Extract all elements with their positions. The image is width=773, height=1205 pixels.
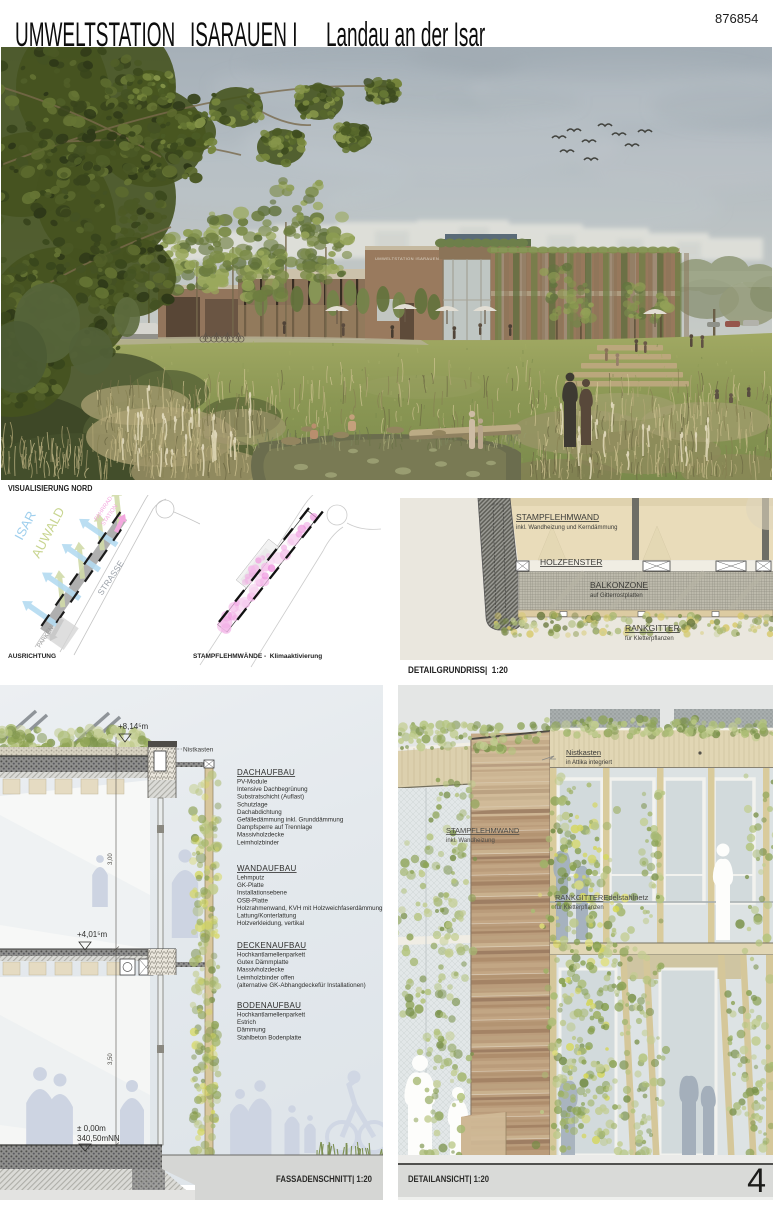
svg-text:Dampfsperre auf Trennlage: Dampfsperre auf Trennlage [237, 824, 313, 831]
svg-text:BALKONZONE: BALKONZONE [590, 580, 648, 590]
svg-text:Nistkasten: Nistkasten [566, 748, 601, 757]
svg-text:Dachabdichtung: Dachabdichtung [237, 809, 282, 816]
svg-text:DACHAUFBAU: DACHAUFBAU [237, 768, 295, 777]
svg-text:Massivholzdecke: Massivholzdecke [237, 967, 285, 974]
svg-text:Lehmputz: Lehmputz [237, 875, 264, 882]
svg-text:HOLZFENSTER: HOLZFENSTER [540, 557, 602, 567]
svg-text:(alternative GK-Abhangdeckefür: (alternative GK-Abhangdeckefür Installat… [237, 982, 366, 989]
svg-text:Installationsebene: Installationsebene [237, 890, 287, 897]
svg-text:Estrich: Estrich [237, 1019, 256, 1026]
svg-text:RANKGITTEREdelstahlnetz: RANKGITTEREdelstahlnetz [555, 893, 649, 902]
svg-text:RANKGITTER: RANKGITTER [625, 623, 680, 633]
svg-text:Substratschicht (Auflast): Substratschicht (Auflast) [237, 794, 304, 801]
svg-text:Hochkantlamellenparkett: Hochkantlamellenparkett [237, 1012, 305, 1019]
svg-text:Gefälledämmung inkl. Grunddämm: Gefälledämmung inkl. Grunddämmung [237, 817, 344, 824]
svg-text:OSB-Platte: OSB-Platte [237, 897, 269, 904]
svg-text:inkl. Wandheizung und Kerndämm: inkl. Wandheizung und Kerndämmung [516, 525, 618, 531]
svg-text:DETAILANSICHT| 1:20: DETAILANSICHT| 1:20 [408, 1174, 489, 1185]
svg-text:AUWALD: AUWALD [28, 505, 67, 561]
svg-text:UMWELTSTATION ISARAUEN: UMWELTSTATION ISARAUEN [375, 256, 439, 261]
svg-text:Stahlbeton Bodenplatte: Stahlbeton Bodenplatte [237, 1034, 302, 1041]
svg-text:STAMPFLEHMWAND: STAMPFLEHMWAND [446, 826, 520, 835]
svg-text:Holzverkleidung, vertikal: Holzverkleidung, vertikal [237, 920, 304, 927]
svg-text:Hochkantlamellenparkett: Hochkantlamellenparkett [237, 952, 305, 959]
svg-text:Schutzlage: Schutzlage [237, 801, 268, 808]
svg-text:4: 4 [747, 1162, 766, 1200]
svg-text:STRASSE: STRASSE [95, 558, 126, 597]
svg-text:+4,01⁵m: +4,01⁵m [77, 930, 108, 939]
svg-text:340,50mNN: 340,50mNN [77, 1134, 120, 1143]
svg-text:auf Gitterrostplatten: auf Gitterrostplatten [590, 593, 643, 599]
svg-text:in Attika integriert: in Attika integriert [566, 760, 612, 766]
svg-text:± 0,00m: ± 0,00m [77, 1124, 106, 1133]
svg-text:FASSADENSCHNITT| 1:20: FASSADENSCHNITT| 1:20 [276, 1174, 372, 1185]
svg-text:Nistkasten: Nistkasten [183, 747, 214, 754]
svg-text:PV-Module: PV-Module [237, 779, 268, 786]
svg-text:Intensive Dachbegrünung: Intensive Dachbegrünung [237, 786, 308, 793]
svg-text:3,50: 3,50 [108, 1053, 114, 1065]
svg-text:Gutex Dämmplatte: Gutex Dämmplatte [237, 959, 289, 966]
svg-text:inkl. Wandheizung: inkl. Wandheizung [446, 838, 495, 844]
svg-text:3,00: 3,00 [108, 853, 114, 865]
svg-text:Massivholzdecke: Massivholzdecke [237, 832, 285, 839]
svg-text:BODENAUFBAU: BODENAUFBAU [237, 1001, 301, 1010]
svg-text:+8,14⁵m: +8,14⁵m [118, 722, 149, 731]
svg-text:GK-Platte: GK-Platte [237, 882, 264, 889]
svg-text:für Kletterpflanzen: für Kletterpflanzen [555, 905, 604, 911]
svg-text:DECKENAUFBAU: DECKENAUFBAU [237, 941, 306, 950]
svg-text:Leimholzbinder: Leimholzbinder [237, 839, 279, 846]
svg-text:Holzrahmenwand, KVH mit Holzwe: Holzrahmenwand, KVH mit Holzweichfaserdä… [237, 905, 383, 912]
svg-text:WANDAUFBAU: WANDAUFBAU [237, 864, 297, 873]
svg-text:für Kletterpflanzen: für Kletterpflanzen [625, 636, 674, 642]
svg-text:Lattung/Konterlattung: Lattung/Konterlattung [237, 913, 297, 920]
svg-text:ISAR: ISAR [11, 509, 38, 543]
svg-text:STAMPFLEHMWAND: STAMPFLEHMWAND [516, 512, 599, 522]
svg-text:Leimholzbinder offen: Leimholzbinder offen [237, 974, 295, 981]
svg-text:Dämmung: Dämmung [237, 1027, 266, 1034]
